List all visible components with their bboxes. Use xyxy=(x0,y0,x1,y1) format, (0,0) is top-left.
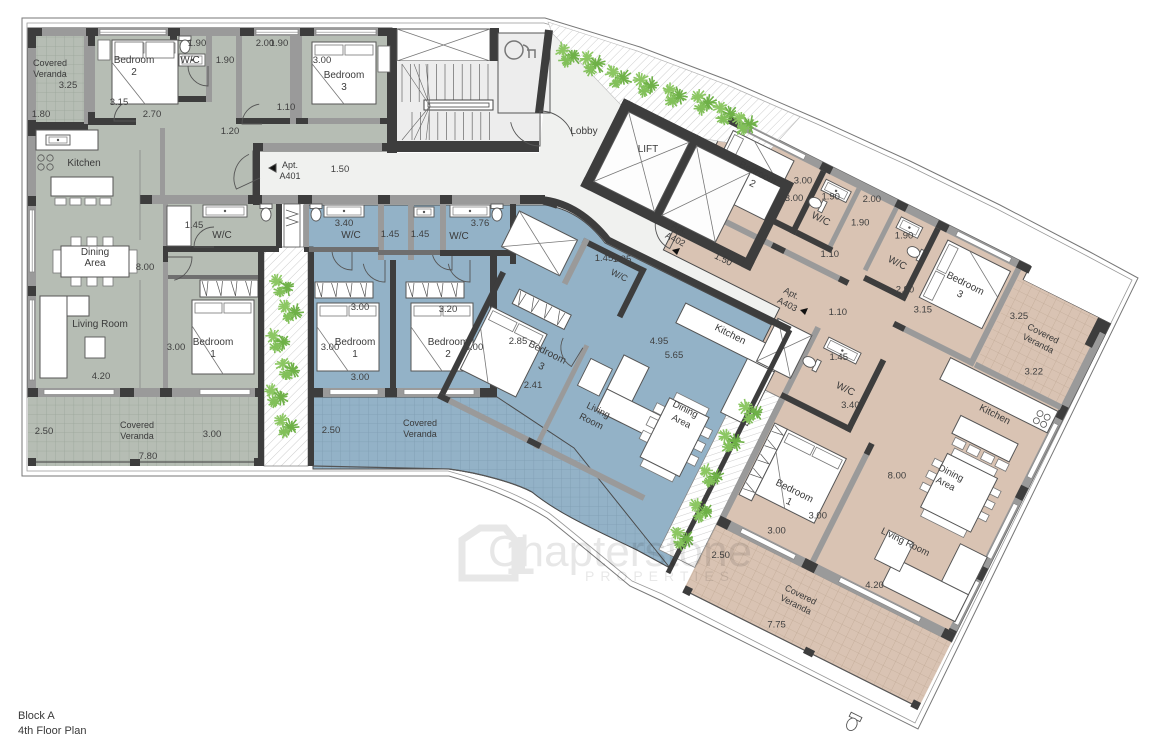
svg-text:Bedroom: Bedroom xyxy=(324,70,365,81)
svg-text:1.90: 1.90 xyxy=(270,38,289,49)
svg-text:3.00: 3.00 xyxy=(794,175,813,186)
svg-text:1.45: 1.45 xyxy=(830,352,849,363)
svg-text:3.00: 3.00 xyxy=(203,429,222,440)
svg-text:Covered: Covered xyxy=(403,418,437,428)
svg-text:2.90: 2.90 xyxy=(896,284,915,295)
svg-text:Apt.: Apt. xyxy=(282,160,298,170)
svg-text:W/C: W/C xyxy=(449,231,468,242)
svg-text:PROPERTIES: PROPERTIES xyxy=(585,568,735,584)
svg-text:Lobby: Lobby xyxy=(570,126,597,137)
svg-text:3.76: 3.76 xyxy=(471,218,490,229)
svg-text:1.95: 1.95 xyxy=(613,254,632,265)
svg-text:3.40: 3.40 xyxy=(335,218,354,229)
svg-text:5.65: 5.65 xyxy=(665,350,684,361)
svg-text:Living Room: Living Room xyxy=(72,319,128,330)
svg-text:W/C: W/C xyxy=(341,230,360,241)
svg-text:3.00: 3.00 xyxy=(313,55,332,66)
svg-text:7.80: 7.80 xyxy=(139,451,158,462)
svg-text:4th Floor Plan: 4th Floor Plan xyxy=(18,725,86,737)
svg-text:8.00: 8.00 xyxy=(136,262,155,273)
svg-text:4.95: 4.95 xyxy=(650,336,669,347)
svg-text:3.00: 3.00 xyxy=(351,302,370,313)
svg-text:Veranda: Veranda xyxy=(33,69,67,79)
svg-text:4.20: 4.20 xyxy=(92,371,111,382)
svg-text:3.00: 3.00 xyxy=(465,342,484,353)
svg-text:1.10: 1.10 xyxy=(277,102,296,113)
svg-text:4.20: 4.20 xyxy=(865,580,884,591)
svg-text:1.45: 1.45 xyxy=(185,220,204,231)
svg-text:3.00: 3.00 xyxy=(167,342,186,353)
svg-text:A401: A401 xyxy=(279,171,300,181)
svg-text:7.75: 7.75 xyxy=(767,619,786,630)
svg-text:1.90: 1.90 xyxy=(851,217,870,228)
svg-text:3.22: 3.22 xyxy=(1024,367,1043,378)
svg-text:2.50: 2.50 xyxy=(322,425,341,436)
svg-text:Veranda: Veranda xyxy=(120,431,154,441)
svg-text:Bedroom: Bedroom xyxy=(335,337,376,348)
svg-text:1.90: 1.90 xyxy=(188,38,207,49)
svg-text:8.00: 8.00 xyxy=(888,470,907,481)
svg-text:W/C: W/C xyxy=(212,230,231,241)
svg-text:2.70: 2.70 xyxy=(143,109,162,120)
svg-text:LIFT: LIFT xyxy=(638,144,659,155)
svg-text:2.00: 2.00 xyxy=(863,194,882,205)
svg-text:2.85: 2.85 xyxy=(509,336,528,347)
svg-text:Covered: Covered xyxy=(120,420,154,430)
svg-text:Bedroom: Bedroom xyxy=(193,337,234,348)
svg-text:Bedroom: Bedroom xyxy=(114,55,155,66)
svg-text:2.50: 2.50 xyxy=(35,426,54,437)
svg-text:3.40: 3.40 xyxy=(841,400,860,411)
svg-text:1.10: 1.10 xyxy=(821,249,840,260)
svg-text:3.00: 3.00 xyxy=(321,342,340,353)
svg-text:1.45: 1.45 xyxy=(595,253,614,264)
svg-text:1.80: 1.80 xyxy=(32,109,51,120)
svg-text:3.25: 3.25 xyxy=(1010,311,1029,322)
svg-text:3: 3 xyxy=(341,82,347,93)
svg-text:Bedroom: Bedroom xyxy=(428,337,469,348)
svg-text:1: 1 xyxy=(210,349,216,360)
svg-text:Area: Area xyxy=(84,258,106,269)
svg-text:1.90: 1.90 xyxy=(216,55,235,66)
svg-text:2: 2 xyxy=(131,67,137,78)
svg-text:Block A: Block A xyxy=(18,710,55,722)
svg-text:3.25: 3.25 xyxy=(59,80,78,91)
svg-text:3.00: 3.00 xyxy=(808,510,827,521)
svg-text:Kitchen: Kitchen xyxy=(67,158,100,169)
svg-text:1.45: 1.45 xyxy=(381,229,400,240)
svg-text:3.15: 3.15 xyxy=(110,97,129,108)
svg-text:W/C: W/C xyxy=(180,55,199,66)
svg-text:3.00: 3.00 xyxy=(767,525,786,536)
svg-text:1.10: 1.10 xyxy=(829,307,848,318)
svg-text:1.20: 1.20 xyxy=(221,126,240,137)
svg-text:3.15: 3.15 xyxy=(914,305,933,316)
svg-text:1: 1 xyxy=(352,349,358,360)
svg-text:3.00: 3.00 xyxy=(351,372,370,383)
svg-text:1.90: 1.90 xyxy=(821,191,840,202)
svg-text:Covered: Covered xyxy=(33,58,67,68)
svg-text:3.20: 3.20 xyxy=(439,304,458,315)
svg-text:3.00: 3.00 xyxy=(785,193,804,204)
svg-text:Veranda: Veranda xyxy=(403,429,437,439)
svg-text:2: 2 xyxy=(445,349,451,360)
svg-text:1.50: 1.50 xyxy=(331,164,350,175)
svg-text:Dining: Dining xyxy=(81,247,109,258)
svg-text:1.90: 1.90 xyxy=(895,230,914,241)
svg-text:1.45: 1.45 xyxy=(411,229,430,240)
svg-text:2.41: 2.41 xyxy=(524,380,543,391)
